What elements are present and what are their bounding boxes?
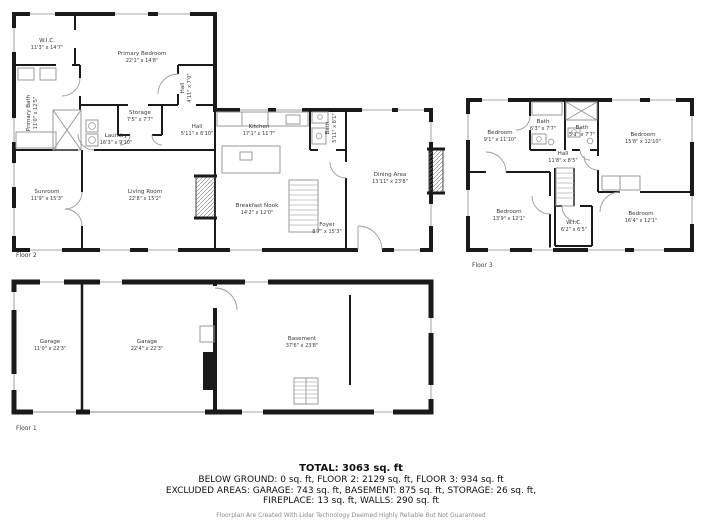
room-label-bath-f2: Bath 5'11" x 8'1" xyxy=(325,113,339,142)
floor-2-plan xyxy=(14,14,445,250)
room-label-hall-f3: Hall 11'8" x 8'5" xyxy=(548,151,577,165)
summary-total: TOTAL: 3063 sq. ft xyxy=(0,463,702,475)
disclaimer: Floorplan Are Created With Lidar Technol… xyxy=(0,512,702,519)
floor-3-caption: Floor 3 xyxy=(472,262,493,269)
room-label-hall-lower-f2: Hall 5'11" x 6'10" xyxy=(181,124,214,138)
room-label-wic-f2: W.I.C. 11'3" x 14'7" xyxy=(31,38,64,52)
room-label-foyer: Foyer 8'7" x 15'3" xyxy=(312,222,341,236)
floor-1-outer-walls xyxy=(14,282,431,412)
stairs-icon-floor3 xyxy=(556,168,574,206)
floor-1-window-frames xyxy=(14,282,431,412)
floor-2-window-frames xyxy=(14,14,431,250)
room-label-bedroom-bl: Bedroom 13'9" x 12'1" xyxy=(493,209,526,223)
floorplan-drawing xyxy=(0,0,702,520)
room-label-bedroom-br: Bedroom 16'4" x 12'1" xyxy=(625,211,658,225)
room-label-hall-upper-f2: Hall 4'11" x 7'0" xyxy=(180,73,194,102)
floor-2-outer-walls xyxy=(14,14,431,250)
floor-2-window-gaps xyxy=(14,14,431,250)
room-label-laundry: Laundry 16'3" x 9'10" xyxy=(100,133,133,147)
floor-1-door-arcs xyxy=(215,288,237,310)
floorplan-page: W.I.C. 11'3" x 14'7" Primary Bedroom 22'… xyxy=(0,0,702,520)
room-label-bedroom-tl: Bedroom 9'1" x 11'10" xyxy=(484,130,517,144)
washer-icon xyxy=(89,123,96,130)
dryer-icon xyxy=(89,137,96,144)
summary-line-3: FIREPLACE: 13 sq. ft, WALLS: 290 sq. ft xyxy=(0,496,702,507)
floor-1-plan xyxy=(14,282,431,412)
floor-2-fixtures xyxy=(16,68,328,173)
room-label-bath-right-f3: Bath 5'1" x 7'7" xyxy=(569,125,595,139)
bath-left-sink-icon xyxy=(537,137,542,142)
room-label-primary-bedroom: Primary Bedroom 22'1" x 14'8" xyxy=(118,51,167,65)
room-label-kitchen: Kitchen 17'1" x 11'7" xyxy=(243,124,276,138)
room-label-primary-bath: Primary Bath 11'0" x 12'5" xyxy=(26,95,40,131)
room-label-breakfast-nook: Breakfast Nook 14'2" x 12'0" xyxy=(236,203,279,217)
stairs-icon-floor1 xyxy=(294,378,318,404)
bath-left-toilet-icon xyxy=(548,139,554,145)
room-label-dining-area: Dining Area 13'11" x 23'8" xyxy=(372,172,408,186)
bath2-sink-icon xyxy=(318,115,323,120)
bath2-toilet-icon xyxy=(316,133,322,139)
floor-3-fixtures xyxy=(532,102,640,190)
chimney-icon xyxy=(203,352,215,390)
room-label-basement: Basement 37'6" x 23'8" xyxy=(286,336,319,350)
room-label-garage-1: Garage 11'0" x 22'3" xyxy=(34,339,67,353)
room-label-wic-f3: W.I.C. 6'2" x 6'5" xyxy=(561,220,587,234)
floor-1-window-gaps xyxy=(14,282,431,412)
fireplace-icon xyxy=(196,177,215,217)
bath-right-toilet-icon xyxy=(587,138,593,144)
room-label-bath-left-f3: Bath 6'3" x 7'7" xyxy=(530,119,556,133)
dining-fireplace-icon xyxy=(429,150,443,192)
utility-box-icon xyxy=(200,326,214,342)
room-label-garage-2: Garage 22'4" x 22'3" xyxy=(131,339,164,353)
room-label-bedroom-tr: Bedroom 15'8" x 12'10" xyxy=(625,132,661,146)
summary-block: TOTAL: 3063 sq. ft BELOW GROUND: 0 sq. f… xyxy=(0,463,702,519)
room-label-living-room: Living Room 22'8" x 15'2" xyxy=(128,189,162,203)
summary-line-1: BELOW GROUND: 0 sq. ft, FLOOR 2: 2129 sq… xyxy=(0,475,702,486)
room-label-storage: Storage 7'5" x 7'7" xyxy=(127,110,153,124)
floor-1-caption: Floor 1 xyxy=(16,425,37,432)
room-label-sunroom: Sunroom 11'9" x 15'3" xyxy=(31,189,64,203)
floor-2-caption: Floor 2 xyxy=(16,252,37,259)
summary-line-2: EXCLUDED AREAS: GARAGE: 743 sq. ft, BASE… xyxy=(0,486,702,497)
